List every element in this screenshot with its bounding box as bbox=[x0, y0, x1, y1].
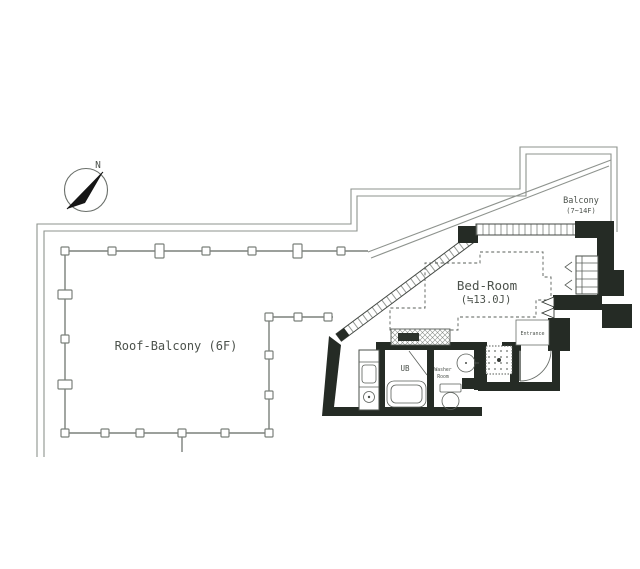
bathtub-icon bbox=[387, 381, 426, 407]
railing-post bbox=[221, 429, 229, 437]
railing-post bbox=[155, 244, 164, 258]
entrance-label: Entrance bbox=[520, 331, 544, 337]
compass-icon bbox=[65, 169, 108, 212]
railing-post bbox=[265, 429, 273, 437]
entrance-door bbox=[520, 350, 551, 381]
toilet-icon bbox=[440, 384, 461, 410]
washer-room-label-1: Washer bbox=[434, 367, 451, 373]
window-corner-wall bbox=[458, 226, 478, 243]
ub-label: UB bbox=[400, 364, 410, 373]
entrance-area: Entrance bbox=[486, 297, 554, 381]
railing-post bbox=[101, 429, 109, 437]
top-window bbox=[476, 224, 576, 235]
railing-post bbox=[248, 247, 256, 255]
balcony-label: Balcony bbox=[563, 196, 599, 206]
railing-post bbox=[324, 313, 332, 321]
railing-post bbox=[61, 429, 69, 437]
railing-post bbox=[294, 313, 302, 321]
railing-post bbox=[136, 429, 144, 437]
diagonal-window bbox=[336, 234, 475, 341]
railing-post bbox=[265, 313, 273, 321]
counter-hatched bbox=[391, 329, 450, 345]
bedroom-label: Bed-Room bbox=[457, 278, 517, 293]
railing-post bbox=[58, 380, 72, 389]
railing-post bbox=[265, 351, 273, 359]
closet-shelves bbox=[576, 256, 598, 294]
floor-plan-page: N R bbox=[0, 0, 640, 569]
railing-post bbox=[108, 247, 116, 255]
balcony-floors-label: (7~14F) bbox=[566, 207, 596, 215]
railing-post bbox=[202, 247, 210, 255]
floor-plan-svg: N R bbox=[0, 0, 640, 569]
bedroom-size-label: (≒13.0J) bbox=[461, 294, 512, 306]
closet-door-chevron-icon bbox=[565, 262, 572, 290]
north-label: N bbox=[95, 160, 101, 171]
railing-post bbox=[61, 335, 69, 343]
bath-room: UB bbox=[387, 351, 427, 407]
bath-door bbox=[409, 351, 427, 375]
railing-post bbox=[178, 429, 186, 437]
railing-post bbox=[293, 244, 302, 258]
railing-post bbox=[61, 247, 69, 255]
kitchenette bbox=[359, 350, 379, 410]
railing-post bbox=[337, 247, 345, 255]
shoe-box-door-wedge-icon bbox=[542, 297, 554, 318]
railing-post bbox=[58, 290, 72, 299]
railing-post bbox=[265, 391, 273, 399]
roof-balcony-label: Roof-Balcony (6F) bbox=[115, 339, 238, 353]
washer-room-label-2: Room bbox=[437, 374, 449, 380]
